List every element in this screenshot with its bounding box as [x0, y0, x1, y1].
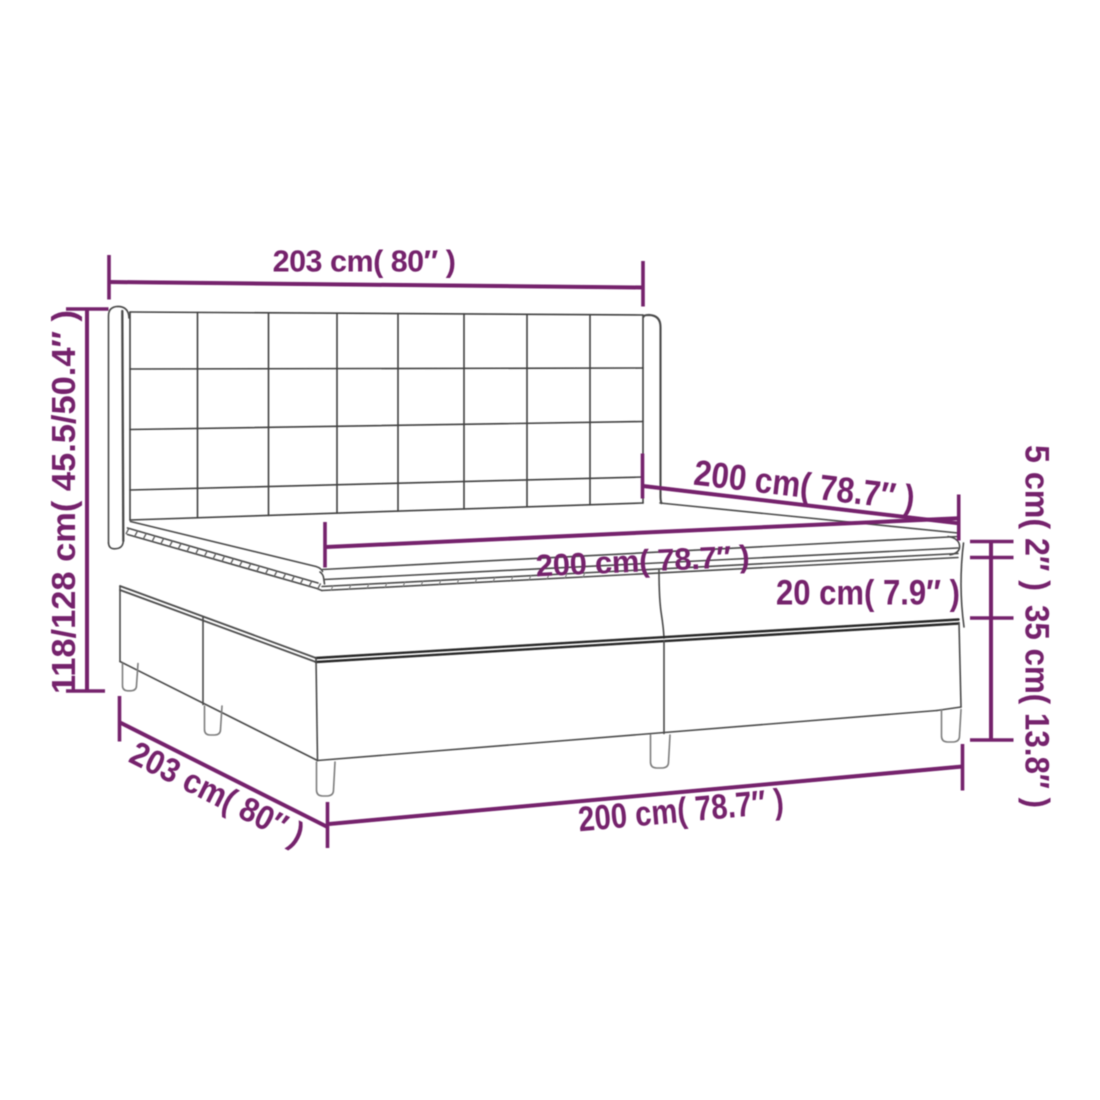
svg-text:5 cm( 2″ ): 5 cm( 2″ ) — [1018, 445, 1056, 591]
svg-text:203 cm( 80″ ): 203 cm( 80″ ) — [124, 734, 311, 854]
svg-text:200 cm( 78.7″ ): 200 cm( 78.7″ ) — [692, 452, 917, 519]
svg-text:35 cm( 13.8″ ): 35 cm( 13.8″ ) — [1018, 605, 1056, 808]
svg-text:118/128 cm( 45.5/50.4″ ): 118/128 cm( 45.5/50.4″ ) — [45, 310, 82, 694]
svg-text:200 cm( 78.7″ ): 200 cm( 78.7″ ) — [535, 539, 750, 584]
svg-text:203 cm( 80″ ): 203 cm( 80″ ) — [273, 245, 456, 279]
svg-text:20 cm( 7.9″ ): 20 cm( 7.9″ ) — [776, 574, 960, 613]
svg-text:200 cm( 78.7″ ): 200 cm( 78.7″ ) — [577, 782, 786, 840]
